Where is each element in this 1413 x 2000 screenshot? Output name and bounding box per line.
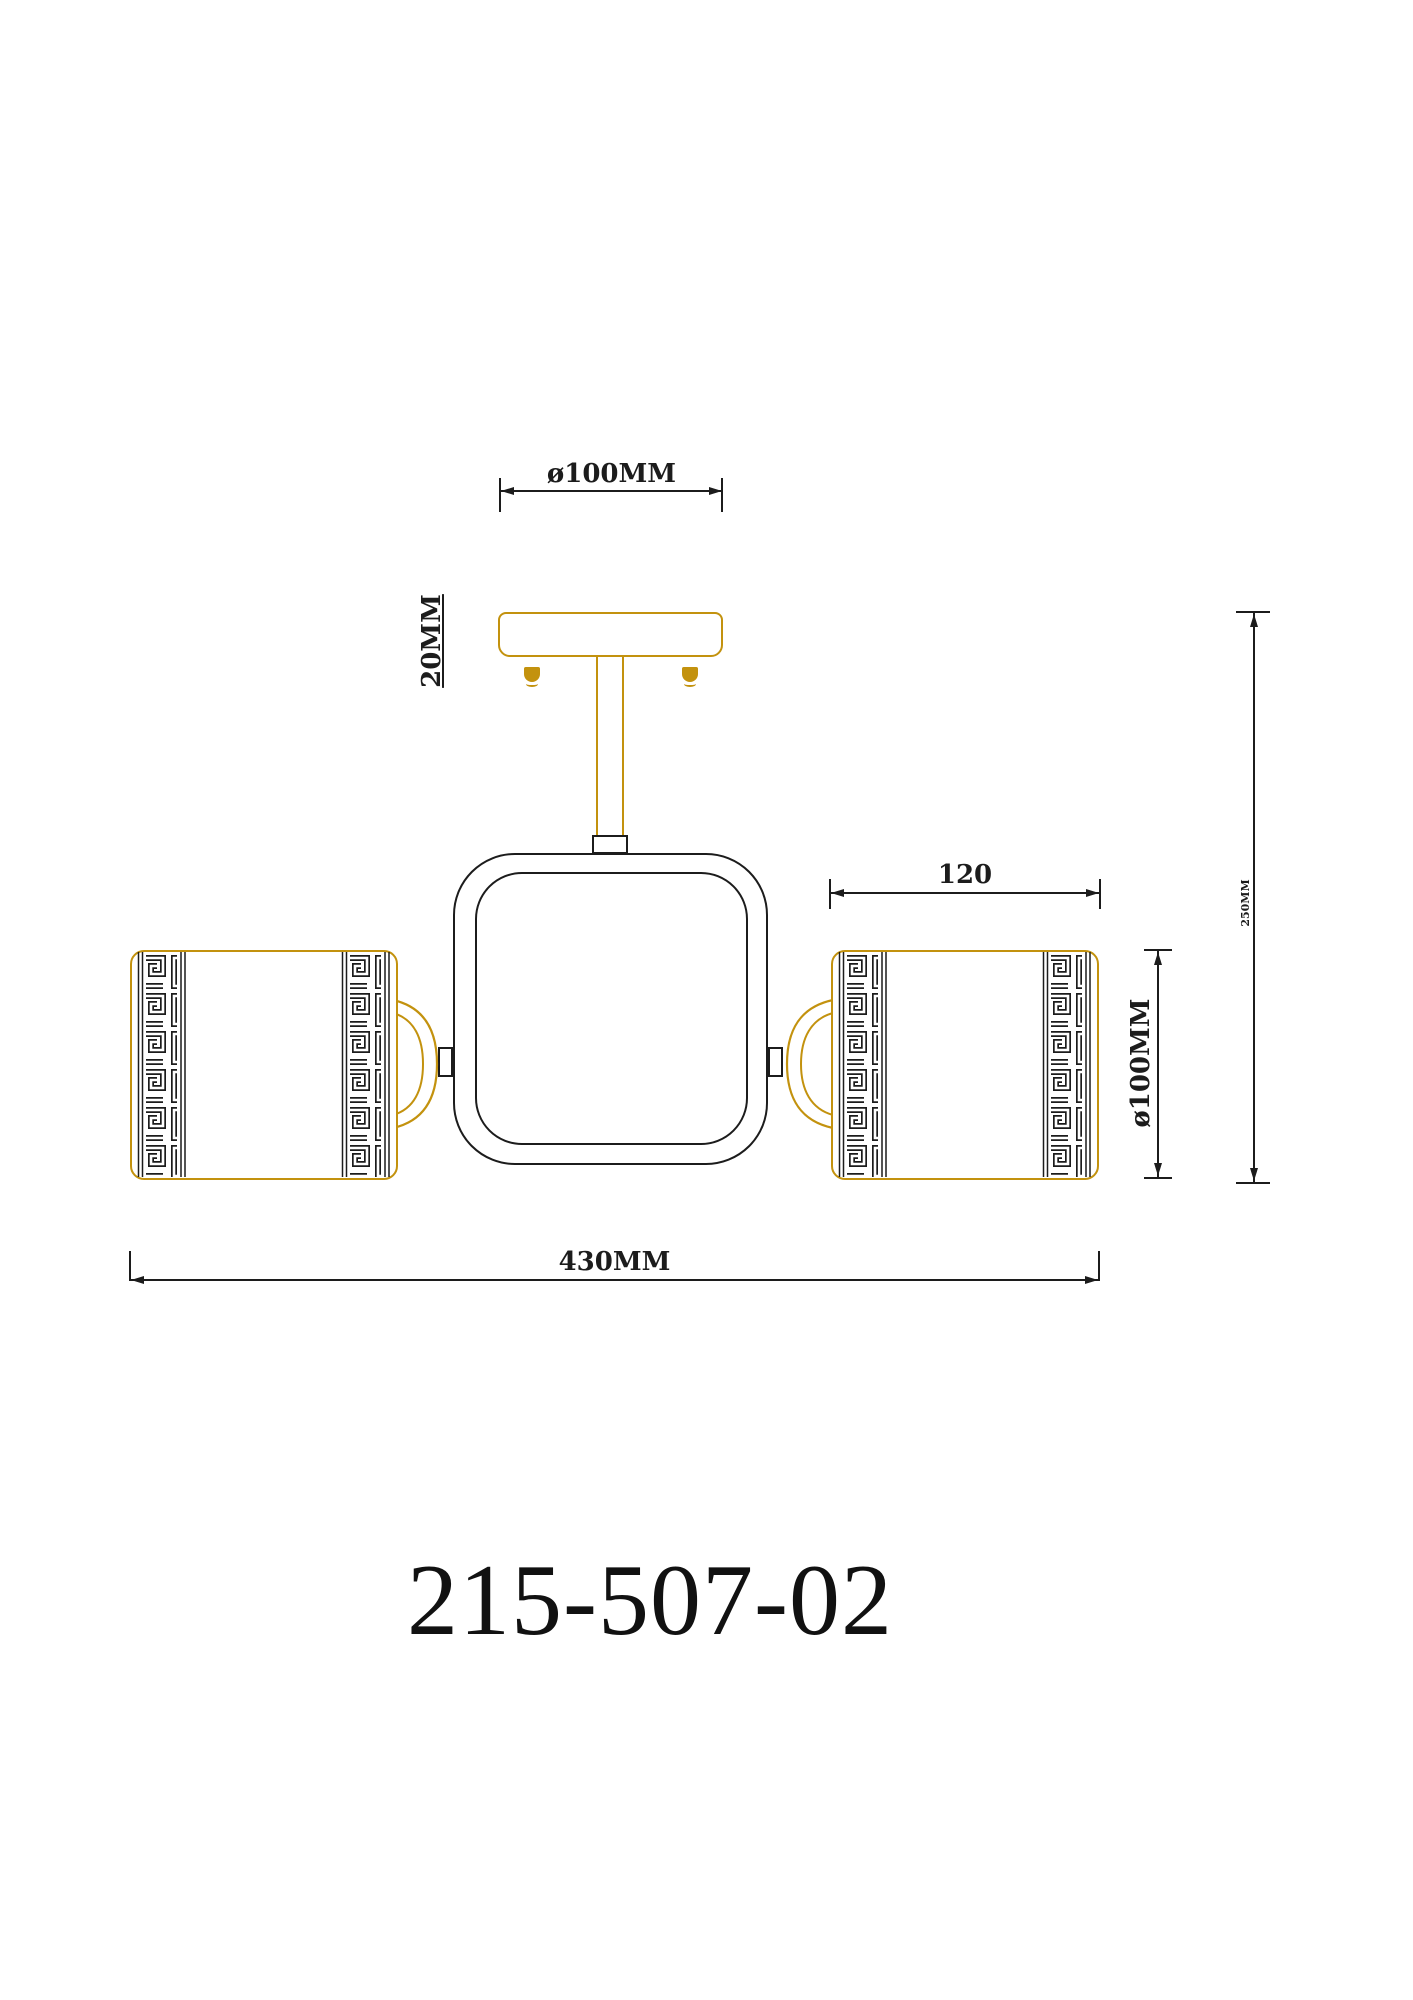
socket-cup-left <box>392 998 439 1130</box>
overall-width-label: 430MM <box>130 1247 1099 1277</box>
technical-drawing-canvas: ø100MM 20MM <box>0 0 1413 2000</box>
shade-width-label: 120 <box>830 860 1100 890</box>
shade-height-dim-line <box>1157 950 1159 1178</box>
shade-width-tick-right <box>1099 879 1101 909</box>
lampshade-left <box>130 950 398 1180</box>
canopy-diameter-dim-line <box>500 490 723 492</box>
arrowhead-icon <box>1250 614 1258 627</box>
stem-rod <box>596 657 624 837</box>
meander-band <box>1042 952 1092 1177</box>
arrowhead-icon <box>1085 1276 1098 1284</box>
canopy-diameter-label: ø100MM <box>500 459 723 489</box>
meander-band <box>137 952 187 1177</box>
arm-connector-right <box>768 1047 783 1077</box>
mounting-screw-right <box>682 667 698 682</box>
shade-height-cap-top <box>1144 949 1172 951</box>
overall-width-dim-line <box>130 1279 1099 1281</box>
arrowhead-icon <box>831 889 844 897</box>
lampshade-right <box>831 950 1099 1180</box>
overall-height-label: 250MM <box>1240 879 1252 926</box>
socket-cup-right <box>784 998 834 1130</box>
arrowhead-icon <box>501 487 514 495</box>
arrowhead-icon <box>131 1276 144 1284</box>
canopy-diameter-tick-right <box>721 478 723 512</box>
canopy-diameter-tick-left <box>499 478 501 512</box>
arm-connector-left <box>438 1047 453 1077</box>
shade-width-dim-line <box>830 892 1100 894</box>
overall-height-cap-top <box>1236 611 1270 613</box>
overall-height-dim-line <box>1253 612 1255 1183</box>
arrowhead-icon <box>709 487 722 495</box>
arrowhead-icon <box>1154 952 1162 965</box>
arrowhead-icon <box>1250 1168 1258 1181</box>
mounting-screw-left <box>524 667 540 682</box>
canopy-height-label: 20MM <box>417 594 447 688</box>
overall-width-tick-right <box>1098 1251 1100 1281</box>
arrowhead-icon <box>1154 1163 1162 1176</box>
shade-height-label: ø100MM <box>1126 998 1156 1127</box>
arrowhead-icon <box>1086 889 1099 897</box>
stem-collar <box>592 835 628 854</box>
ceiling-canopy-plate <box>498 612 723 657</box>
shade-height-cap-bottom <box>1144 1177 1172 1179</box>
meander-band <box>341 952 391 1177</box>
meander-band <box>838 952 888 1177</box>
product-code: 215-507-02 <box>150 1542 1150 1659</box>
frame-inner-ring <box>475 872 748 1145</box>
overall-height-cap-bottom <box>1236 1182 1270 1184</box>
